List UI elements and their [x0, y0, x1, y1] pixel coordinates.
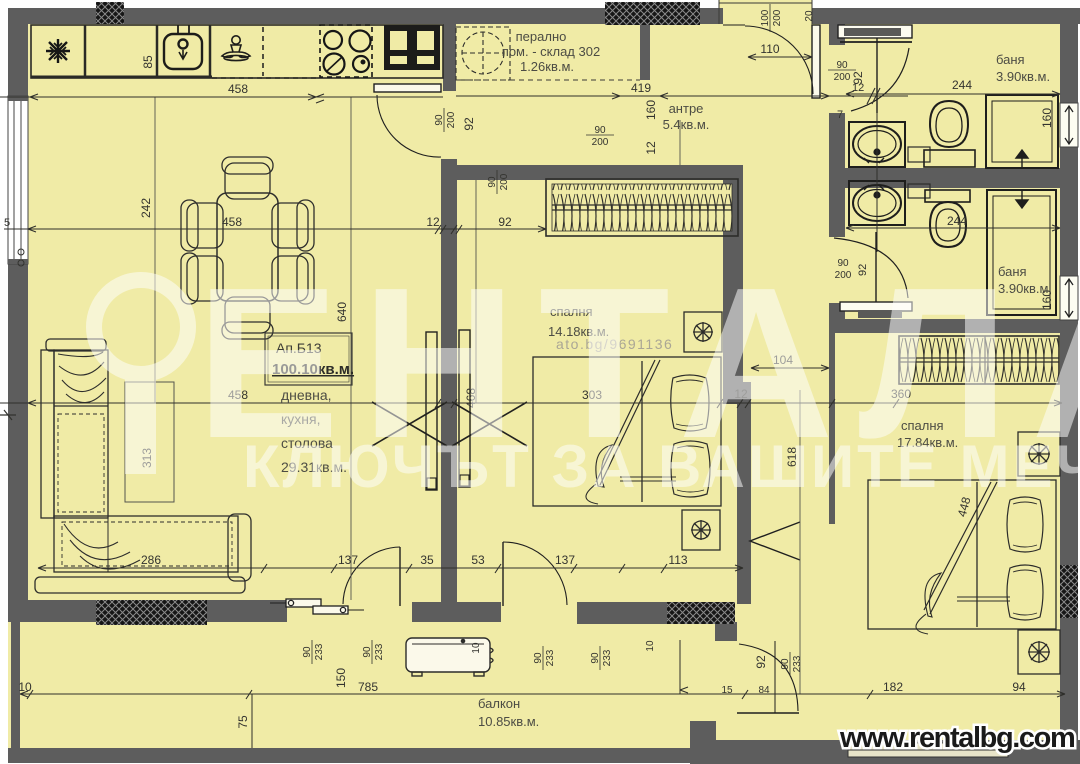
svg-text:182: 182 — [883, 680, 903, 694]
svg-text:www.rentalbg.com: www.rentalbg.com — [839, 722, 1074, 754]
svg-text:458: 458 — [222, 215, 242, 229]
svg-text:85: 85 — [141, 55, 155, 69]
svg-text:1.26кв.м.: 1.26кв.м. — [520, 59, 574, 74]
svg-text:160: 160 — [1040, 108, 1054, 128]
svg-text:160: 160 — [644, 100, 658, 120]
svg-text:84: 84 — [758, 685, 770, 696]
svg-text:90: 90 — [836, 60, 848, 71]
svg-text:баня: баня — [996, 52, 1025, 67]
svg-text:242: 242 — [139, 198, 153, 218]
svg-text:10: 10 — [645, 640, 656, 652]
svg-text:пом. - склад 302: пом. - склад 302 — [502, 44, 600, 59]
svg-text:12: 12 — [644, 141, 658, 155]
svg-text:92: 92 — [851, 71, 865, 85]
svg-text:137: 137 — [338, 553, 358, 567]
svg-text:785: 785 — [358, 680, 378, 694]
svg-text:90: 90 — [533, 652, 544, 664]
svg-text:5: 5 — [4, 217, 10, 229]
svg-text:233: 233 — [792, 655, 803, 672]
svg-text:92: 92 — [754, 655, 768, 669]
svg-text:233: 233 — [374, 643, 385, 660]
svg-text:113: 113 — [668, 553, 687, 567]
svg-text:233: 233 — [602, 649, 613, 666]
svg-text:антре: антре — [669, 101, 704, 116]
svg-text:94: 94 — [1012, 680, 1026, 694]
svg-text:90: 90 — [590, 652, 601, 664]
svg-text:110: 110 — [760, 42, 779, 56]
svg-text:балкон: балкон — [478, 696, 520, 711]
svg-text:200: 200 — [499, 173, 510, 190]
svg-text:75: 75 — [236, 715, 250, 729]
svg-text:90: 90 — [594, 125, 606, 136]
svg-text:10: 10 — [18, 680, 32, 694]
svg-text:20: 20 — [804, 10, 815, 22]
svg-text:12: 12 — [426, 215, 440, 229]
svg-text:286: 286 — [141, 553, 161, 567]
svg-text:10.85кв.м.: 10.85кв.м. — [478, 714, 539, 729]
svg-text:90: 90 — [362, 646, 373, 658]
svg-text:92: 92 — [462, 117, 476, 131]
svg-text:458: 458 — [228, 82, 248, 96]
svg-text:3.90кв.м.: 3.90кв.м. — [996, 69, 1050, 84]
svg-text:35: 35 — [420, 553, 434, 567]
svg-text:200: 200 — [772, 9, 783, 26]
svg-text:419: 419 — [631, 81, 651, 95]
svg-text:90: 90 — [487, 176, 498, 188]
svg-text:10: 10 — [471, 642, 482, 654]
svg-text:5.4кв.м.: 5.4кв.м. — [663, 117, 710, 132]
svg-text:53: 53 — [471, 553, 485, 567]
svg-text:100: 100 — [760, 9, 771, 26]
svg-text:7: 7 — [837, 109, 843, 121]
svg-text:15: 15 — [721, 685, 733, 696]
svg-text:200: 200 — [834, 72, 851, 83]
svg-text:150: 150 — [334, 668, 348, 688]
svg-text:90: 90 — [434, 114, 445, 126]
svg-text:90: 90 — [780, 658, 791, 670]
svg-text:233: 233 — [545, 649, 556, 666]
svg-text:233: 233 — [314, 643, 325, 660]
svg-text:90: 90 — [302, 646, 313, 658]
svg-text:КЛЮЧЪТ ЗА ВАШИТЕ МЕЧТИ: КЛЮЧЪТ ЗА ВАШИТЕ МЕЧТИ — [243, 433, 1080, 500]
svg-text:92: 92 — [498, 215, 512, 229]
svg-text:137: 137 — [555, 553, 575, 567]
svg-text:перално: перално — [516, 29, 567, 44]
svg-text:200: 200 — [446, 111, 457, 128]
svg-text:244: 244 — [952, 78, 972, 92]
svg-text:244: 244 — [947, 214, 967, 228]
svg-text:200: 200 — [592, 137, 609, 148]
